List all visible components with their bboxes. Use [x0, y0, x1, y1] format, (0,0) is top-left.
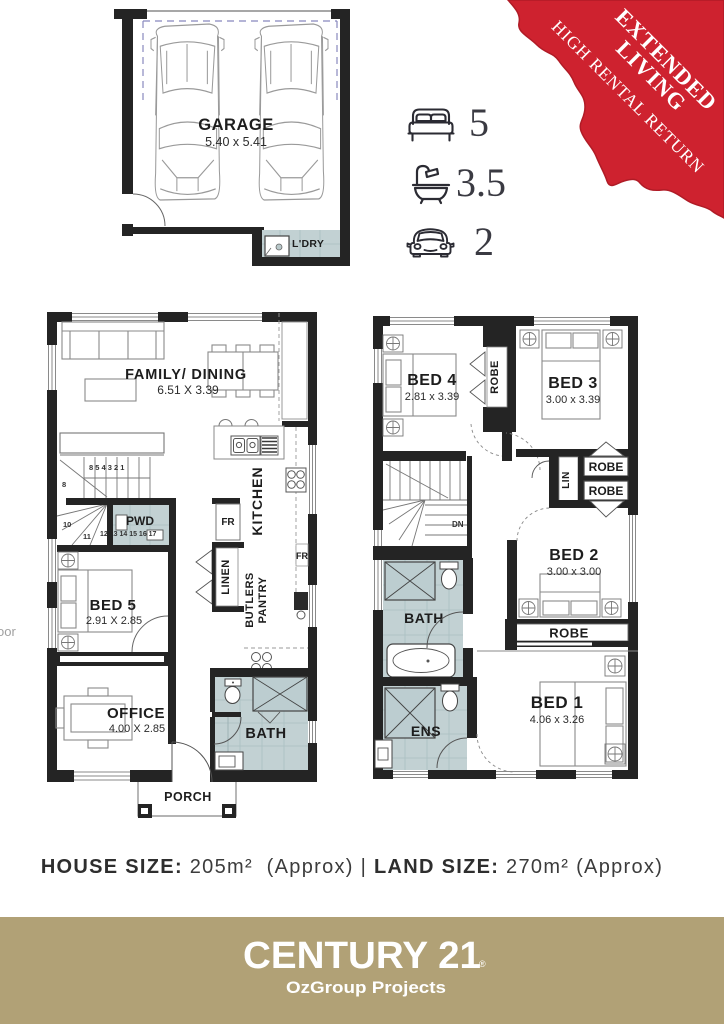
svg-text:ROBE: ROBE [549, 626, 589, 641]
svg-text:8: 8 [62, 480, 66, 489]
svg-text:ENS: ENS [411, 723, 441, 739]
svg-text:DN: DN [452, 520, 464, 529]
svg-text:BATH: BATH [404, 610, 444, 626]
svg-text:HOUSE SIZE: 205m² (Approx) |: HOUSE SIZE: 205m² (Approx) | LAND SIZE: … [41, 856, 663, 878]
svg-text:LIN: LIN [561, 471, 572, 489]
svg-text:10: 10 [63, 520, 71, 529]
svg-text:3.00 x 3.39: 3.00 x 3.39 [546, 394, 600, 406]
svg-text:OzGroup Projects: OzGroup Projects [286, 978, 446, 997]
svg-text:®: ® [479, 959, 486, 969]
svg-text:CENTURY 21: CENTURY 21 [243, 935, 481, 977]
svg-text:FAMILY/ DINING: FAMILY/ DINING [125, 367, 247, 383]
svg-text:oor: oor [0, 624, 16, 639]
svg-text:8 5 4 3 2 1: 8 5 4 3 2 1 [89, 463, 124, 472]
svg-text:2.91 X 2.85: 2.91 X 2.85 [86, 615, 142, 627]
svg-text:BED 4: BED 4 [407, 372, 457, 389]
svg-text:FR: FR [296, 551, 308, 561]
svg-text:BED 5: BED 5 [90, 597, 137, 614]
svg-text:LINEN: LINEN [220, 559, 232, 595]
svg-text:OFFICE: OFFICE [107, 705, 165, 722]
svg-text:PWD: PWD [126, 514, 154, 528]
svg-text:2: 2 [474, 219, 494, 264]
svg-text:BED 1: BED 1 [531, 693, 584, 712]
svg-text:5: 5 [469, 100, 489, 145]
svg-text:GARAGE: GARAGE [198, 116, 273, 134]
svg-text:4.06 x 3.26: 4.06 x 3.26 [530, 714, 584, 726]
svg-text:ROBE: ROBE [589, 460, 624, 474]
svg-text:4.00 X 2.85: 4.00 X 2.85 [109, 723, 165, 735]
svg-text:3.00 x 3.00: 3.00 x 3.00 [547, 566, 601, 578]
svg-text:PANTRY: PANTRY [257, 576, 269, 623]
svg-text:2.81 x 3.39: 2.81 x 3.39 [405, 391, 459, 403]
svg-text:3.5: 3.5 [456, 160, 506, 205]
svg-text:BED 2: BED 2 [549, 547, 599, 564]
svg-text:PORCH: PORCH [164, 790, 212, 804]
svg-text:ROBE: ROBE [589, 484, 624, 498]
svg-text:L'DRY: L'DRY [292, 238, 324, 250]
svg-text:5.40 x 5.41: 5.40 x 5.41 [205, 135, 267, 149]
svg-text:BUTLERS: BUTLERS [244, 572, 256, 627]
svg-text:BED 3: BED 3 [548, 375, 598, 392]
svg-text:6.51 X 3.39: 6.51 X 3.39 [157, 383, 219, 397]
svg-text:ROBE: ROBE [489, 360, 501, 394]
svg-text:BATH: BATH [245, 726, 286, 742]
svg-text:KITCHEN: KITCHEN [249, 466, 265, 535]
svg-text:FR: FR [221, 517, 235, 528]
svg-text:11: 11 [83, 532, 91, 541]
